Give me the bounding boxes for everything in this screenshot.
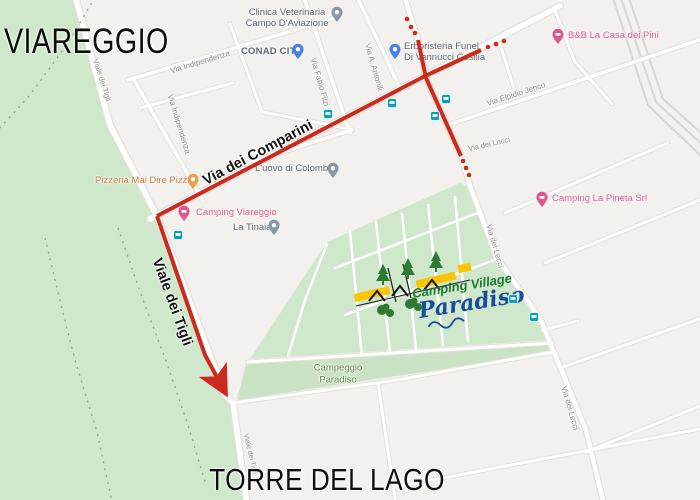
transit-stop-icon[interactable] [442, 95, 451, 104]
conad-city-pin-icon[interactable] [292, 44, 303, 59]
pizzeria-pin-icon[interactable] [187, 174, 198, 189]
transit-stop-icon[interactable] [530, 313, 539, 322]
erboristeria-pin-icon[interactable] [389, 44, 400, 59]
camping-viareggio-pin-icon[interactable] [178, 206, 189, 221]
route-segment-comparini [157, 50, 481, 216]
city-label-torre-del-lago: TORRE DEL LAGO [209, 462, 445, 498]
transit-icons [174, 95, 539, 322]
la-tinaia-pin-icon[interactable] [268, 220, 279, 235]
route-segment-lecci [418, 40, 461, 156]
route-and-icons-layer [0, 0, 700, 500]
bnb-casa-dei-pini-pin-icon[interactable] [552, 29, 563, 44]
camping-la-pineta-pin-icon[interactable] [536, 192, 547, 207]
uovo-di-colombo-pin-icon[interactable] [327, 163, 338, 178]
route-segment-tigli [157, 216, 226, 394]
route-line [157, 40, 481, 394]
city-label-viareggio: VIAREGGIO [4, 22, 169, 62]
transit-stop-icon[interactable] [509, 295, 518, 304]
transit-stop-icon[interactable] [174, 231, 183, 240]
transit-stop-icon[interactable] [431, 112, 440, 121]
clinica-veterinaria-pin-icon[interactable] [331, 7, 342, 22]
map-canvas[interactable]: Camping Village Paradiso VIAREGGIO TORRE… [0, 0, 700, 500]
transit-stop-icon[interactable] [388, 99, 397, 108]
transit-stop-icon[interactable] [324, 110, 333, 119]
